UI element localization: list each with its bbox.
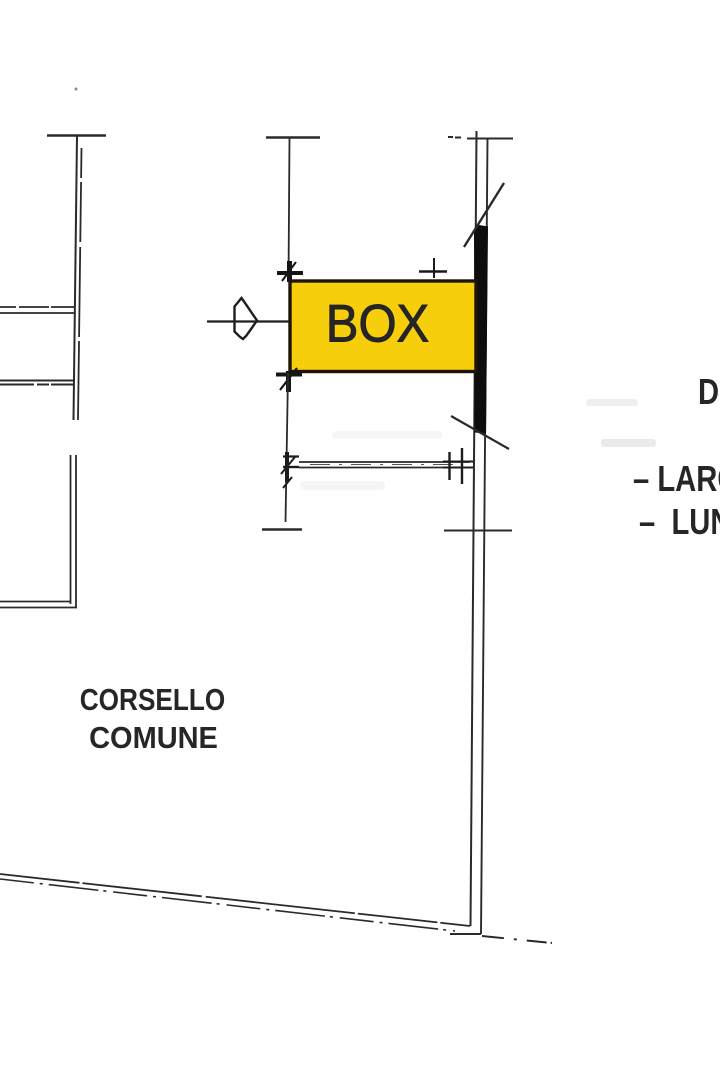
- svg-text:BOX: BOX: [326, 294, 429, 353]
- svg-text:– LARGHEZZA: – LARGHEZZA: [633, 459, 720, 500]
- svg-text:CORSELLO: CORSELLO: [80, 683, 225, 718]
- svg-text:– LUNGHEZZA: – LUNGHEZZA: [639, 502, 720, 543]
- svg-text:COMUNE: COMUNE: [89, 721, 218, 755]
- svg-text:DI: DI: [698, 372, 720, 413]
